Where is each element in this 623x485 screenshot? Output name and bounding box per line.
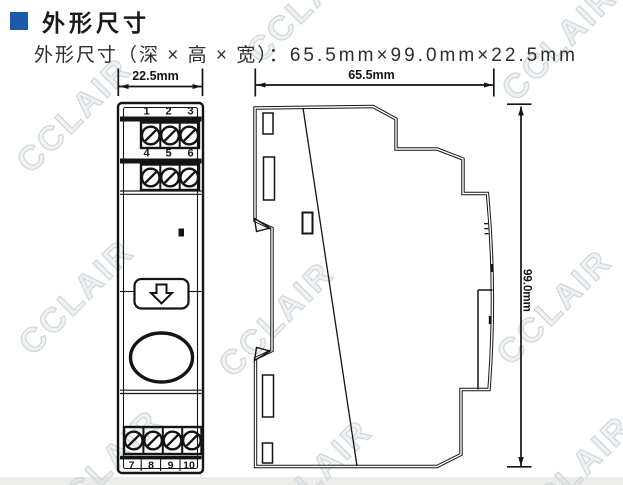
height-dimension: 99.0mm bbox=[507, 104, 533, 467]
terminal-strip-row1 bbox=[141, 123, 199, 149]
led-indicator bbox=[179, 229, 185, 237]
terminal-number: 3 bbox=[187, 106, 193, 118]
width-dimension-label: 22.5mm bbox=[132, 69, 179, 83]
arrowhead-right-icon bbox=[193, 84, 202, 89]
terminal-numbers-row2: 4 5 6 bbox=[143, 148, 193, 160]
terminal-strip-row2 bbox=[141, 165, 199, 191]
terminal-block-bar bbox=[120, 117, 202, 122]
terminal-strip-bottom bbox=[124, 427, 202, 454]
face-detail-tick bbox=[484, 228, 488, 229]
screw-slot bbox=[166, 434, 178, 446]
release-clip-button bbox=[120, 279, 202, 309]
screw-slot bbox=[164, 129, 176, 141]
face-detail-tick bbox=[484, 223, 488, 224]
arrowhead-up-icon bbox=[518, 107, 524, 116]
vent-slot bbox=[263, 443, 273, 463]
terminal-number: 8 bbox=[148, 460, 154, 472]
page-title: 外形尺寸 bbox=[42, 4, 150, 38]
face-detail-mark bbox=[489, 316, 492, 324]
terminal-block-bar bbox=[120, 159, 202, 164]
vent-slot bbox=[263, 113, 273, 134]
screw-slot bbox=[186, 434, 198, 446]
side-view: 65.5mm 99.0mm bbox=[255, 68, 533, 467]
vent-slot bbox=[264, 157, 275, 200]
vent-slot bbox=[263, 375, 274, 417]
terminal-number: 1 bbox=[143, 106, 149, 118]
screw-slot bbox=[183, 129, 195, 141]
dimension-drawing: 22.5mm 1 2 3 bbox=[0, 0, 623, 485]
arrowhead-down-icon bbox=[518, 457, 524, 466]
screw-slot bbox=[164, 171, 176, 183]
terminal-number: 4 bbox=[143, 148, 150, 160]
side-window-slot bbox=[303, 213, 313, 234]
screw-slot bbox=[145, 129, 157, 141]
title-bullet-square bbox=[10, 12, 28, 30]
screw-slot bbox=[183, 171, 195, 183]
side-view-outline-inner bbox=[255, 107, 492, 467]
terminal-number: 7 bbox=[129, 460, 135, 472]
terminal-number: 5 bbox=[165, 148, 171, 160]
arrowhead-left-icon bbox=[120, 84, 129, 89]
face-detail-tick bbox=[485, 233, 489, 234]
front-view: 22.5mm 1 2 3 bbox=[118, 69, 203, 474]
depth-dimension-label: 65.5mm bbox=[348, 68, 395, 82]
section-header: 外形尺寸 bbox=[0, 6, 150, 36]
terminal-number: 10 bbox=[183, 460, 195, 472]
screw-slot bbox=[145, 171, 157, 183]
datasheet-dimensions-section: CCLAIR CCLAIR CCLAIR CCLAIR CCLAIR CCLAI… bbox=[0, 0, 623, 485]
terminal-numbers-bottom: 7 8 9 10 bbox=[129, 460, 195, 472]
face-detail-mark bbox=[491, 264, 494, 272]
height-dimension-label: 99.0mm bbox=[521, 269, 533, 312]
depth-dimension: 65.5mm bbox=[255, 68, 493, 97]
screw-slot bbox=[147, 434, 159, 446]
side-view-outline bbox=[255, 107, 492, 467]
section-line bbox=[303, 108, 357, 466]
arrowhead-left-icon bbox=[257, 83, 266, 88]
dimensions-summary-label: 外形尺寸（深 × 高 × 宽）： bbox=[34, 45, 290, 66]
dimensions-summary-value: 65.5mm×99.0mm×22.5mm bbox=[290, 45, 578, 66]
arrowhead-right-icon bbox=[484, 83, 493, 88]
down-arrow-icon bbox=[151, 285, 172, 304]
screw-slot bbox=[128, 434, 140, 446]
width-dimension: 22.5mm bbox=[118, 69, 202, 97]
dimensions-summary-line: 外形尺寸（深 × 高 × 宽）：65.5mm×99.0mm×22.5mm bbox=[34, 40, 578, 67]
label-window-ellipse bbox=[131, 333, 193, 382]
terminal-number: 9 bbox=[168, 460, 174, 472]
terminal-number: 6 bbox=[187, 148, 193, 160]
terminal-number: 2 bbox=[165, 106, 171, 118]
